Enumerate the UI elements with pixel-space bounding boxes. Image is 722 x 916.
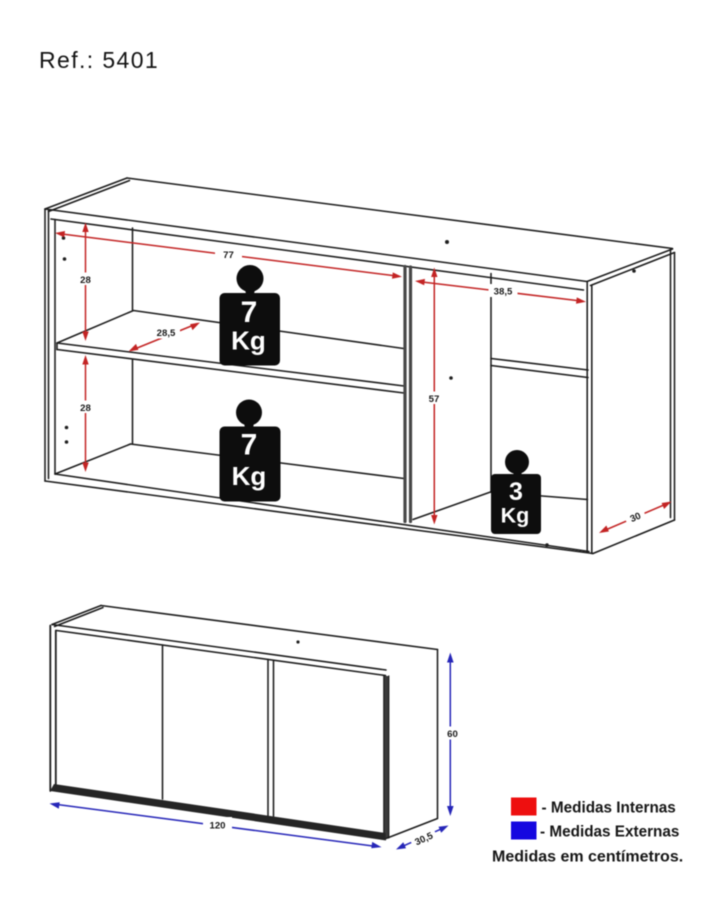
svg-text:120: 120	[209, 821, 225, 832]
svg-text:57: 57	[429, 394, 440, 405]
svg-text:28,5: 28,5	[157, 328, 176, 339]
svg-text:- Medidas Internas: - Medidas Internas	[542, 800, 676, 817]
svg-text:28: 28	[80, 275, 91, 286]
svg-text:77: 77	[223, 250, 234, 261]
svg-text:Kg: Kg	[501, 504, 530, 528]
svg-text:Kg: Kg	[231, 326, 266, 356]
svg-text:Medidas em centímetros.: Medidas em centímetros.	[492, 849, 683, 866]
svg-text:Ref.: 5401: Ref.: 5401	[39, 47, 159, 73]
svg-text:7: 7	[241, 429, 258, 462]
svg-text:28: 28	[80, 403, 91, 414]
svg-text:- Medidas Externas: - Medidas Externas	[540, 824, 679, 841]
svg-text:3: 3	[509, 478, 523, 506]
svg-text:38,5: 38,5	[494, 287, 513, 298]
svg-text:60: 60	[447, 729, 458, 740]
svg-text:Kg: Kg	[232, 461, 267, 491]
svg-text:7: 7	[241, 296, 258, 329]
